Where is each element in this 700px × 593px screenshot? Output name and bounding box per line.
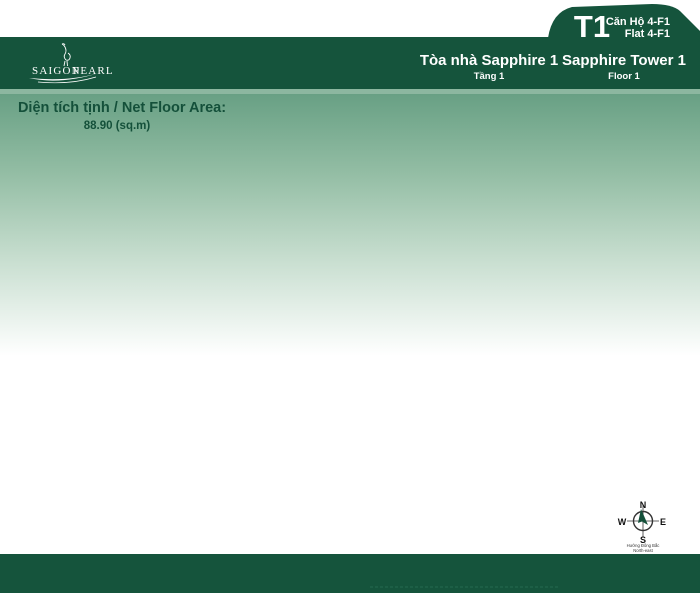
svg-text:88.90 (sq.m): 88.90 (sq.m) [84, 120, 151, 132]
svg-text:Căn Hộ 4-F1: Căn Hộ 4-F1 [606, 16, 670, 28]
svg-text:Tòa nhà Sapphire 1: Tòa nhà Sapphire 1 [420, 52, 558, 69]
svg-text:E: E [660, 517, 666, 527]
svg-text:Flat 4-F1: Flat 4-F1 [625, 28, 670, 40]
svg-text:PEARL: PEARL [73, 65, 114, 77]
svg-text:Sapphire Tower 1: Sapphire Tower 1 [562, 52, 686, 69]
svg-text:T1: T1 [574, 9, 610, 44]
svg-text:North-east: North-east [633, 548, 653, 553]
svg-text:Floor 1: Floor 1 [608, 71, 640, 82]
svg-text:Tầng 1: Tầng 1 [474, 71, 505, 82]
svg-text:W: W [618, 517, 627, 527]
svg-text:N: N [640, 500, 647, 510]
svg-text:Diện tích tịnh / Net Floor Are: Diện tích tịnh / Net Floor Area: [18, 100, 226, 116]
